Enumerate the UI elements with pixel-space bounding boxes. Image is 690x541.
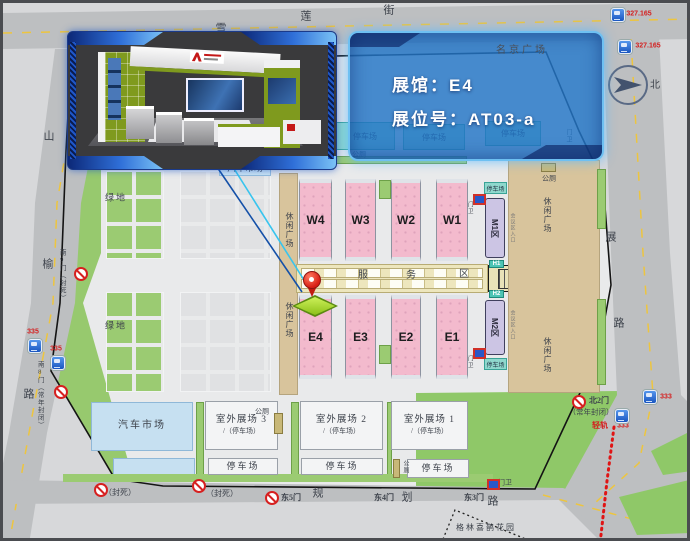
booth-photo-panel <box>67 31 337 170</box>
inset-corner-bl <box>68 156 163 169</box>
booth-logo-icon <box>192 52 202 62</box>
booth-callout: 展馆：E4 展位号：AT03-a <box>348 31 604 161</box>
booth-main-screen <box>186 78 244 112</box>
booth-right-screen <box>268 78 296 104</box>
callout-hall-line: 展馆：E4 <box>392 71 474 96</box>
booth-side-cabinet <box>283 120 321 144</box>
mingjing-plaza-label: 名京广场 <box>496 46 548 56</box>
booth-cabinet-logo <box>287 124 295 131</box>
booth-logo-text-bar <box>204 54 221 57</box>
booth-counter-1 <box>126 106 154 139</box>
booth-logo-plate <box>190 51 225 64</box>
callout-accent-br <box>522 145 602 159</box>
booth-counter-3 <box>184 118 214 145</box>
callout-accent-tl <box>350 33 420 47</box>
booth-logo-subtext-bar <box>204 58 218 60</box>
inset-corner-br <box>241 156 336 169</box>
booth-counter-2 <box>156 112 182 143</box>
inset-edge-left <box>70 42 76 159</box>
callout-booth-line: 展位号：AT03-a <box>392 105 535 130</box>
booth-poster-column <box>108 58 121 120</box>
inset-edge-right <box>328 42 334 159</box>
inset-corner-tr <box>241 32 336 45</box>
venue-map: 绿地 绿地 汽车市场 休闲广场 休闲广场 W4 W3 W2 W1 服 务 区 E… <box>0 0 690 541</box>
booth-reception-desk <box>218 124 280 147</box>
inset-corner-tl <box>68 32 163 45</box>
